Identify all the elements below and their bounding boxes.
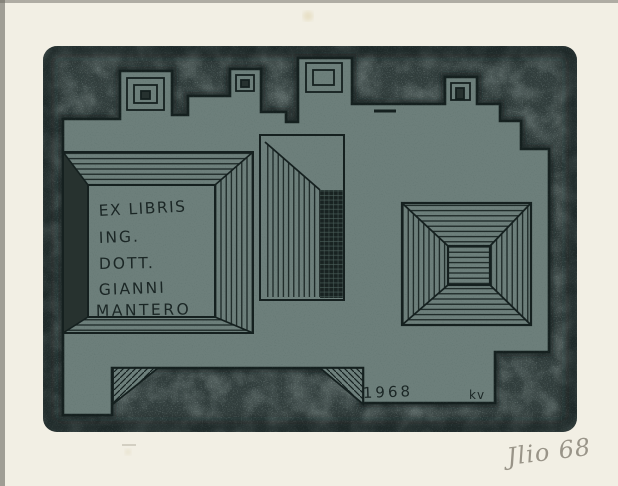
etching-artwork: EX LIBRIS ING. DOTT. GIANNI MANTERO <box>0 0 618 486</box>
tunnel-motif <box>402 203 531 325</box>
dedication-line-5: MANTERO <box>96 300 192 320</box>
turret4-square-inner <box>456 88 464 99</box>
dedication-line-4: GIANNI <box>99 279 167 299</box>
tunnel-center <box>448 246 490 285</box>
plate-year-text: 1968 <box>363 382 414 402</box>
scanned-print: EX LIBRIS ING. DOTT. GIANNI MANTERO <box>0 0 618 486</box>
dedication-line-3: DOTT. <box>99 254 155 273</box>
turret2-square-inner <box>241 80 249 87</box>
scan-edge-left <box>0 0 5 486</box>
plate-monogram-text: kv <box>469 388 485 402</box>
turret1-square-inner <box>141 91 150 99</box>
dedication-line-2: ING. <box>99 228 141 247</box>
scan-edge-top <box>0 0 618 3</box>
panel-dark-column-hatch-v <box>320 190 343 298</box>
